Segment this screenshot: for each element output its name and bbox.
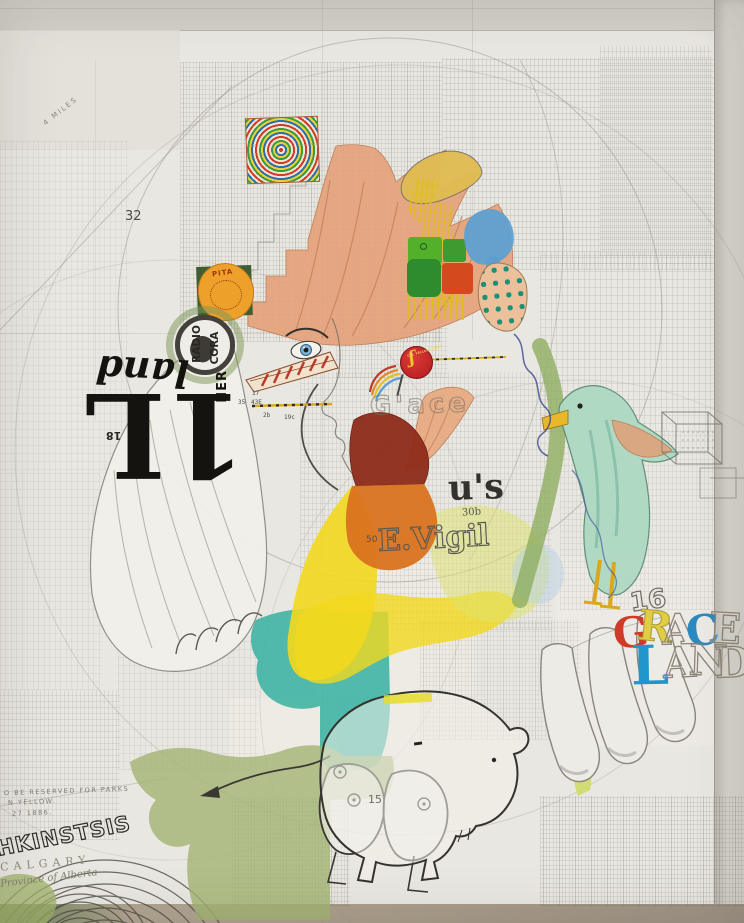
parks-note-line2: N YELLOW. [8, 798, 57, 806]
green-rect [443, 239, 466, 262]
spiral-sticker [245, 116, 320, 185]
land-letter-d: D [714, 641, 744, 684]
cora-label: CORA [203, 326, 215, 370]
map-number: 19c [284, 415, 295, 421]
map-number: 17 [252, 391, 259, 397]
map-number-30b: 30b [462, 507, 482, 518]
map-number-18: 18 [106, 430, 121, 441]
map-number: 2b [263, 413, 270, 419]
map-number-15: 15 [368, 794, 382, 805]
ghost-grace-label: G'ace [370, 390, 471, 419]
orange-rect [442, 263, 473, 294]
us-label: u's [447, 469, 504, 506]
evigil-label: E.Vigil [377, 521, 490, 557]
green-rect-dark [407, 259, 441, 297]
map-number: 43E [251, 400, 262, 406]
artwork-photo: PITA RADIO CORA ʃ CAL YELLOW FLEET 32 4 … [0, 0, 744, 923]
section-number: 32 [125, 210, 142, 223]
small-circle-mark [420, 243, 427, 250]
parks-note-line3: 27 1886. [12, 809, 53, 817]
pita-sticker-ring [210, 280, 242, 310]
map-number-50: 50 [366, 536, 377, 545]
